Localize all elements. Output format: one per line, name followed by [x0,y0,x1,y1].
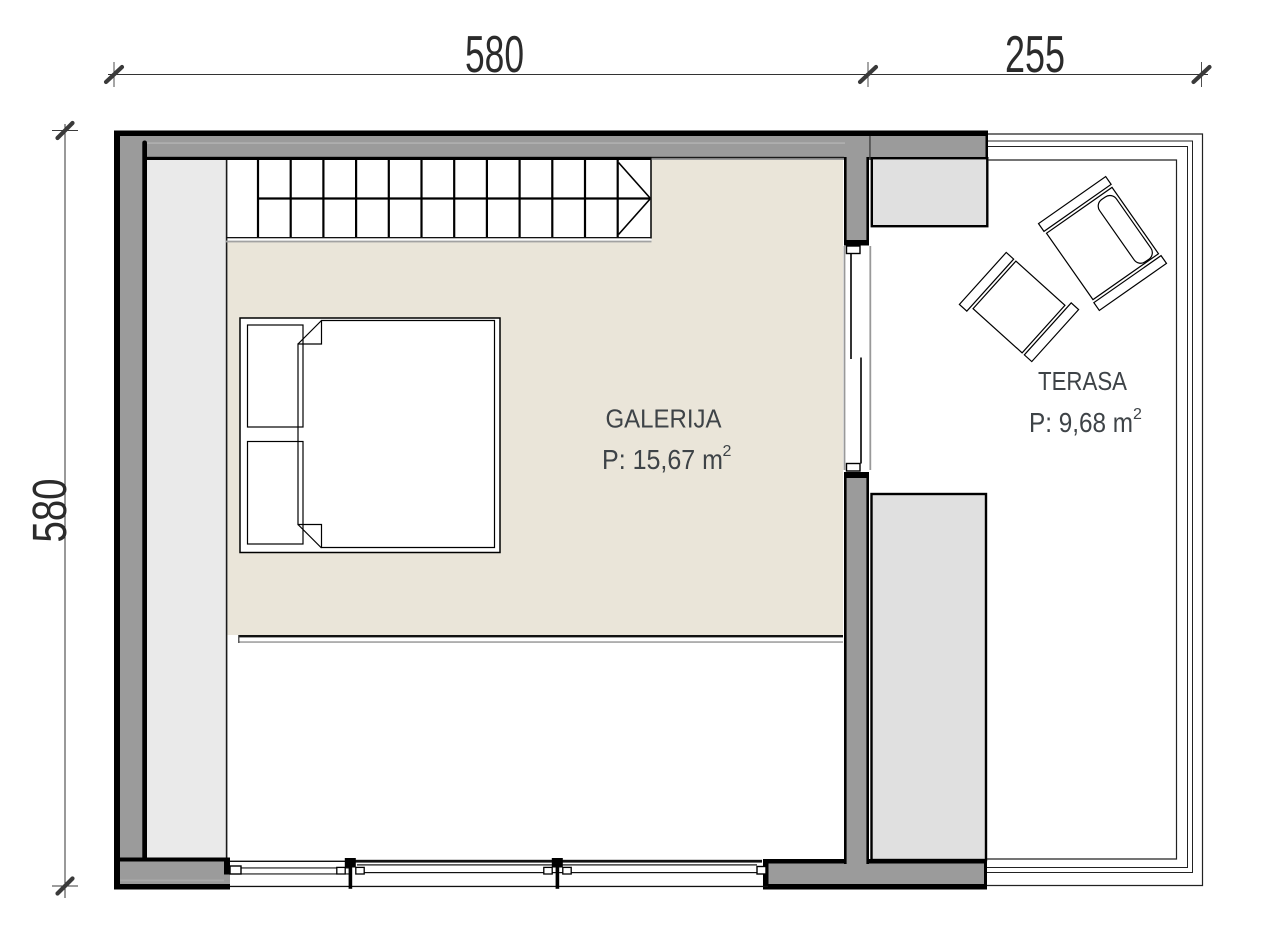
svg-text:580: 580 [24,479,77,543]
svg-text:2: 2 [1133,406,1142,423]
svg-text:255: 255 [1005,26,1065,84]
svg-text:P: 9,68 m: P: 9,68 m [1029,407,1133,438]
svg-text:580: 580 [465,26,524,84]
svg-text:2: 2 [723,443,732,460]
svg-text:TERASA: TERASA [1038,366,1128,396]
svg-text:P: 15,67 m: P: 15,67 m [602,444,723,475]
svg-text:GALERIJA: GALERIJA [606,404,723,434]
